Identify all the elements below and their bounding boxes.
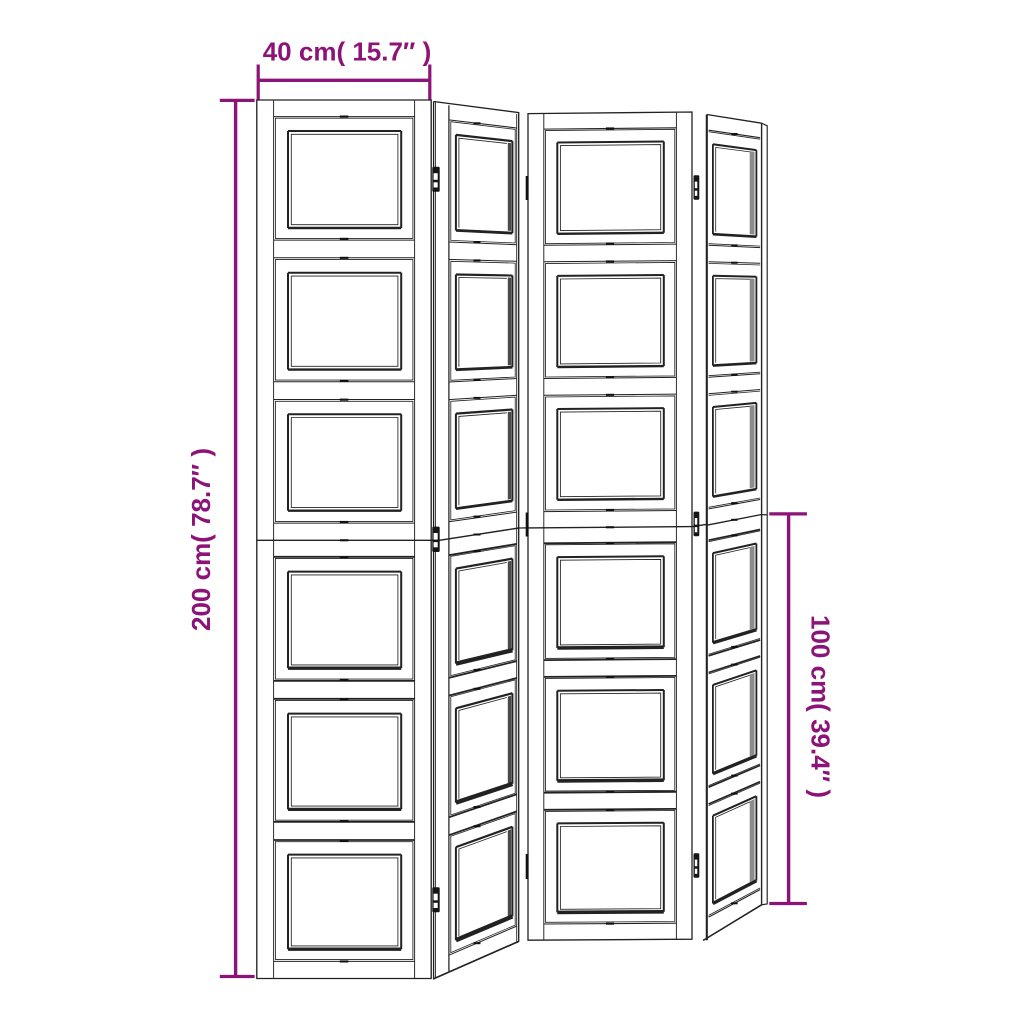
svg-text:200 cm( 78.7″ ): 200 cm( 78.7″ ) — [186, 448, 216, 631]
svg-text:100 cm( 39.4″ ): 100 cm( 39.4″ ) — [806, 615, 836, 798]
svg-text:40 cm( 15.7″ ): 40 cm( 15.7″ ) — [263, 36, 432, 66]
